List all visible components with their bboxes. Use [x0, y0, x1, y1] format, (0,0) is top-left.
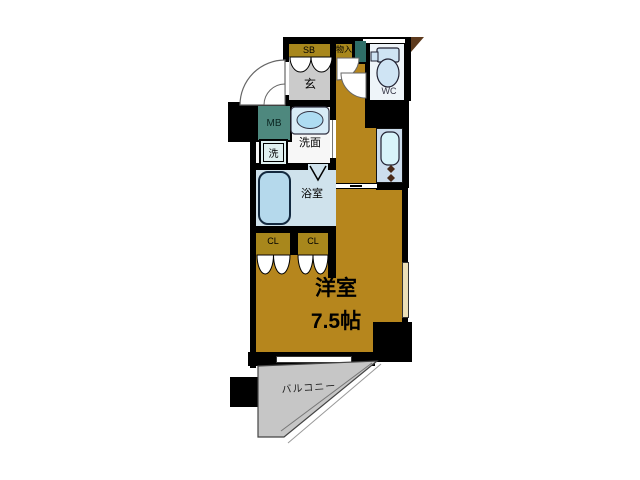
main-room-name: 洋室	[298, 272, 374, 302]
stove-burner-icon	[387, 174, 395, 182]
stove-burner-icon	[387, 165, 395, 173]
shoe-box-folding-door-icon	[311, 57, 332, 72]
closet-right-label: CL	[299, 237, 327, 246]
main-room-label: 洋室 7.5帖	[298, 272, 374, 335]
corner-wedge	[411, 37, 424, 52]
floor-plan: MB 洗	[0, 0, 640, 480]
bathtub-icon	[259, 172, 290, 224]
shoe-box-label: SB	[294, 46, 324, 55]
toilet-label: WC	[379, 87, 399, 96]
kitchen-sink-icon	[381, 132, 399, 165]
storage-label: 物入	[335, 46, 353, 54]
main-room-size: 7.5帖	[298, 305, 374, 335]
toilet-flush-icon	[371, 52, 378, 61]
toilet-bowl-icon	[377, 59, 399, 87]
bathroom-label: 浴室	[293, 189, 331, 200]
washroom-label: 洗面	[291, 138, 329, 149]
closet-folding-door-icon	[274, 255, 291, 274]
toilet-door-arc-icon	[341, 73, 366, 98]
closet-left-label: CL	[258, 237, 288, 246]
washroom-sink-icon	[297, 112, 323, 129]
shoe-box-folding-door-icon	[290, 57, 311, 72]
entrance-label: 玄	[302, 78, 318, 90]
closet-folding-door-icon	[257, 255, 274, 274]
